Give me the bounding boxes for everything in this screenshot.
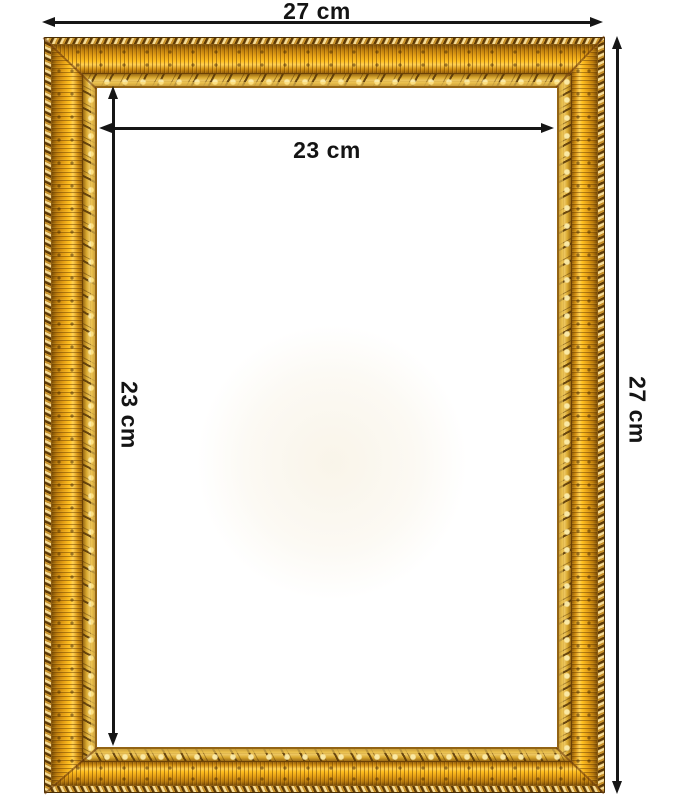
frame-top-rail [44, 37, 605, 88]
inner-height-arrow-line [112, 94, 115, 739]
inner-width-arrow-line [107, 127, 547, 130]
arrowhead-right-icon [541, 123, 554, 133]
rope-edge [44, 37, 52, 793]
arrowhead-left-icon [99, 123, 112, 133]
inner-height-label: 23 cm [118, 381, 141, 449]
ornate-scroll-band [44, 73, 605, 88]
outer-width-arrow-line [50, 21, 597, 24]
brushed-gold-band [572, 37, 597, 793]
outer-height-label: 27 cm [626, 376, 649, 444]
arrowhead-left-icon [42, 17, 55, 27]
outer-height-arrow-line [616, 44, 619, 786]
inner-width-label: 23 cm [293, 139, 361, 162]
ornate-scroll-band [44, 747, 605, 762]
outer-width-label: 27 cm [283, 0, 351, 23]
brushed-gold-band [44, 762, 605, 785]
arrowhead-down-icon [612, 781, 622, 794]
frame-right-rail [557, 37, 605, 793]
frame-dimension-diagram: 27 cm 27 cm [0, 0, 683, 800]
rope-edge [597, 37, 605, 793]
glass-sheen [197, 325, 467, 600]
ornate-scroll-band [557, 37, 572, 793]
brushed-gold-band [52, 37, 82, 793]
arrowhead-up-icon [612, 36, 622, 49]
frame-left-rail [44, 37, 97, 793]
rope-edge [44, 37, 605, 45]
arrowhead-up-icon [108, 86, 118, 99]
arrowhead-right-icon [590, 17, 603, 27]
brushed-gold-band [44, 45, 605, 73]
rope-edge [44, 785, 605, 793]
frame-bottom-rail [44, 747, 605, 793]
ornate-scroll-band [82, 37, 97, 793]
arrowhead-down-icon [108, 733, 118, 746]
